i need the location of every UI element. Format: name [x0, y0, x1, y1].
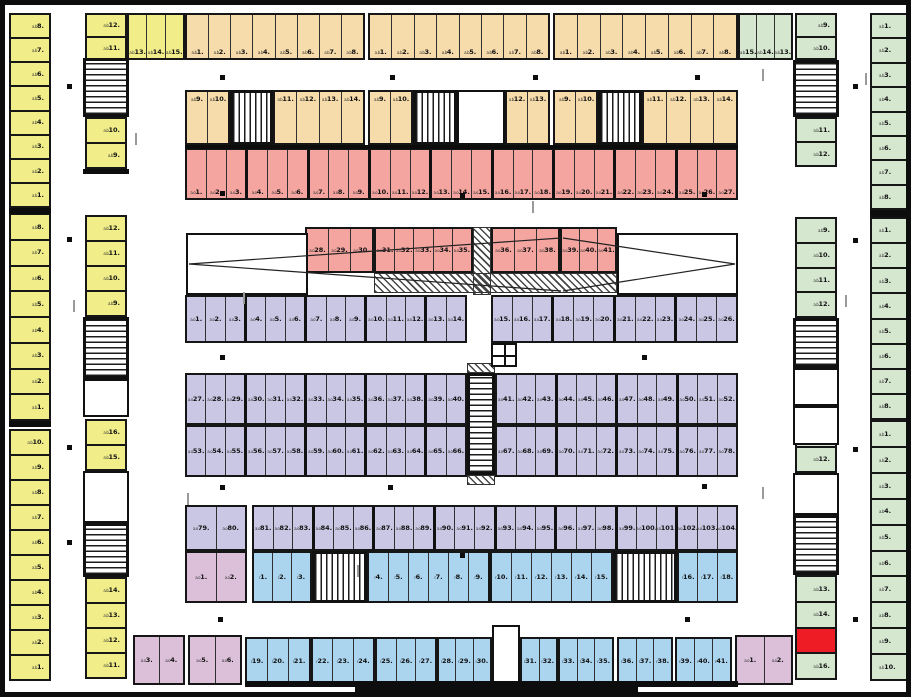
parking-stall[interactable]: a.o23.: [655, 297, 675, 341]
highlighted-stall[interactable]: [797, 627, 835, 653]
parking-stall[interactable]: a.o37.: [386, 375, 405, 423]
parking-stall[interactable]: r10.: [492, 553, 511, 601]
parking-stall[interactable]: a.o13.: [429, 150, 451, 198]
parking-stall[interactable]: a.o82.: [273, 507, 293, 549]
parking-stall[interactable]: a.b3.: [872, 472, 911, 498]
parking-stall[interactable]: a.o33.: [304, 375, 325, 423]
parking-stall[interactable]: a.o76.: [676, 427, 698, 475]
parking-stall[interactable]: a.b16.: [87, 421, 125, 444]
parking-stall[interactable]: a.b5.: [872, 111, 911, 135]
parking-stall[interactable]: a.o98.: [595, 507, 615, 549]
parking-stall[interactable]: a.o88.: [394, 507, 414, 549]
parking-stall[interactable]: a.o10.: [368, 150, 390, 198]
parking-stall[interactable]: a.o65.: [424, 427, 445, 475]
parking-stall[interactable]: a.o37.: [514, 229, 536, 271]
parking-stall[interactable]: a.o25.: [696, 297, 716, 341]
parking-stall[interactable]: a.b11.: [797, 267, 835, 292]
parking-stall[interactable]: a.b10.: [87, 265, 125, 290]
parking-stall[interactable]: a.b9.: [555, 92, 575, 143]
parking-stall[interactable]: a.b11.: [797, 119, 835, 141]
parking-stall[interactable]: a.o40.: [579, 229, 597, 271]
parking-stall[interactable]: a.b8.: [11, 215, 49, 239]
parking-stall[interactable]: a.o83.: [292, 507, 312, 549]
parking-stall[interactable]: a.b9.: [872, 627, 911, 653]
parking-stall[interactable]: a.o6.: [285, 297, 304, 341]
parking-stall[interactable]: a.b5.: [872, 318, 911, 343]
parking-stall[interactable]: a.b7.: [691, 15, 714, 58]
parking-stall[interactable]: a.b2.: [872, 446, 911, 472]
parking-stall[interactable]: a.o31.: [265, 375, 284, 423]
parking-stall[interactable]: a.b2.: [872, 37, 911, 61]
parking-stall[interactable]: a.b2.: [11, 368, 49, 394]
parking-stall[interactable]: a.o32.: [285, 375, 304, 423]
parking-stall[interactable]: a.o14.: [446, 297, 465, 341]
parking-stall[interactable]: a.o16.: [512, 297, 532, 341]
parking-stall[interactable]: a.b15.: [165, 15, 183, 58]
parking-stall[interactable]: a.o39.: [424, 375, 445, 423]
parking-stall[interactable]: a.o42.: [516, 375, 536, 423]
parking-stall[interactable]: a.o97.: [576, 507, 596, 549]
parking-stall[interactable]: a.o54.: [205, 427, 224, 475]
parking-stall[interactable]: a.o85.: [333, 507, 353, 549]
parking-stall[interactable]: r28.: [439, 639, 455, 683]
parking-stall[interactable]: a.o12.: [405, 297, 424, 341]
parking-stall[interactable]: r3.: [291, 553, 310, 601]
parking-stall[interactable]: a.b9.: [87, 142, 125, 167]
parking-stall[interactable]: r13.: [551, 553, 571, 601]
parking-stall[interactable]: a.b9.: [797, 15, 835, 36]
parking-stall[interactable]: a.o13.: [424, 297, 445, 341]
parking-stall[interactable]: a.b5.: [11, 554, 49, 579]
parking-stall[interactable]: a.b13.: [87, 602, 125, 627]
parking-stall[interactable]: r22.: [313, 639, 332, 683]
parking-stall[interactable]: a.b6.: [11, 265, 49, 291]
parking-stall[interactable]: a.o29.: [328, 229, 350, 271]
parking-stall[interactable]: a.b7.: [872, 575, 911, 601]
parking-stall[interactable]: a.o73.: [615, 427, 637, 475]
parking-stall[interactable]: a.b14.: [756, 15, 773, 58]
parking-stall[interactable]: r30.: [473, 639, 490, 683]
parking-stall[interactable]: a.b6.: [872, 343, 911, 368]
parking-stall[interactable]: a.b4.: [252, 15, 274, 58]
parking-stall[interactable]: a.o45.: [576, 375, 596, 423]
parking-stall[interactable]: a.b3.: [872, 267, 911, 292]
parking-stall[interactable]: a.b2.: [391, 15, 413, 58]
parking-stall[interactable]: a.b1.: [555, 15, 577, 58]
parking-stall[interactable]: a.o80.: [216, 507, 246, 549]
parking-stall[interactable]: a.o26.: [716, 297, 736, 341]
parking-stall[interactable]: a.o26.: [697, 150, 717, 198]
parking-stall[interactable]: r21.: [288, 639, 309, 683]
parking-stall[interactable]: a.o19.: [573, 297, 593, 341]
parking-stall[interactable]: a.o71.: [576, 427, 596, 475]
parking-stall[interactable]: a.b7.: [872, 368, 911, 393]
parking-stall[interactable]: a.b9.: [187, 92, 207, 143]
parking-stall[interactable]: a.b5.: [459, 15, 481, 58]
parking-stall[interactable]: a.o35.: [452, 229, 471, 271]
parking-stall[interactable]: a.b11.: [87, 240, 125, 265]
parking-stall[interactable]: a.b8.: [872, 393, 911, 418]
parking-stall[interactable]: r39.: [677, 639, 694, 683]
parking-stall[interactable]: a.b3.: [230, 15, 252, 58]
parking-stall[interactable]: a.b6.: [11, 61, 49, 85]
parking-stall[interactable]: a.o39.: [562, 229, 579, 271]
parking-stall[interactable]: a.b14.: [87, 579, 125, 602]
parking-stall[interactable]: a.b10.: [797, 36, 835, 59]
parking-stall[interactable]: a.o9.: [345, 297, 364, 341]
parking-stall[interactable]: a.o56.: [244, 427, 265, 475]
parking-stall[interactable]: a.o8.: [328, 150, 348, 198]
parking-stall[interactable]: a.o28.: [307, 229, 328, 271]
parking-stall[interactable]: a.o47.: [615, 375, 637, 423]
parking-stall[interactable]: a.o32.: [394, 229, 413, 271]
parking-stall[interactable]: r14.: [571, 553, 591, 601]
parking-stall[interactable]: a.o28.: [205, 375, 224, 423]
parking-stall[interactable]: a.b9.: [87, 290, 125, 315]
parking-stall[interactable]: a.o18.: [532, 150, 552, 198]
parking-stall[interactable]: a.b6.: [481, 15, 503, 58]
parking-stall[interactable]: a.b7.: [872, 159, 911, 183]
parking-stall[interactable]: a.o4.: [244, 297, 265, 341]
parking-stall[interactable]: a.b11.: [87, 652, 125, 677]
parking-stall[interactable]: a.b3.: [11, 342, 49, 368]
parking-stall[interactable]: a.o21.: [613, 297, 635, 341]
parking-stall[interactable]: a.o100.: [636, 507, 656, 549]
parking-stall[interactable]: a.o69.: [535, 427, 555, 475]
parking-stall[interactable]: a.o95.: [535, 507, 555, 549]
parking-stall[interactable]: r6.: [408, 553, 428, 601]
parking-stall[interactable]: a.b8.: [341, 15, 363, 58]
parking-stall[interactable]: a.b5.: [872, 524, 911, 550]
parking-stall[interactable]: a.b4.: [872, 498, 911, 524]
parking-stall[interactable]: a.b14.: [797, 601, 835, 627]
parking-stall[interactable]: a.o7.: [307, 150, 329, 198]
parking-stall[interactable]: a.o11.: [386, 297, 405, 341]
parking-stall[interactable]: r8.: [448, 553, 468, 601]
parking-stall[interactable]: a.b1.: [11, 393, 49, 419]
parking-stall[interactable]: r16.: [679, 553, 697, 601]
parking-stall[interactable]: a.b6.: [872, 550, 911, 576]
parking-stall[interactable]: a.b12.: [797, 291, 835, 316]
parking-stall[interactable]: a.o72.: [596, 427, 616, 475]
parking-stall[interactable]: a.b1.: [872, 15, 911, 37]
parking-stall[interactable]: a.o1.: [187, 297, 205, 341]
parking-stall[interactable]: r19.: [247, 639, 267, 683]
parking-stall[interactable]: r4.: [369, 553, 388, 601]
parking-stall[interactable]: a.o59.: [304, 427, 325, 475]
parking-stall[interactable]: a.o1.: [187, 553, 216, 601]
parking-stall[interactable]: a.o50.: [676, 375, 698, 423]
parking-stall[interactable]: a.o5.: [190, 637, 215, 683]
parking-stall[interactable]: a.o23.: [635, 150, 655, 198]
parking-stall[interactable]: r38.: [653, 639, 671, 683]
parking-stall[interactable]: a.o75.: [656, 427, 676, 475]
parking-stall[interactable]: a.b11.: [275, 92, 296, 143]
parking-stall[interactable]: a.b1.: [370, 15, 391, 58]
parking-stall[interactable]: a.b3.: [600, 15, 623, 58]
parking-stall[interactable]: a.o3.: [135, 637, 159, 683]
parking-stall[interactable]: a.b8.: [872, 601, 911, 627]
parking-stall[interactable]: a.b2.: [208, 15, 230, 58]
parking-stall[interactable]: a.o74.: [637, 427, 657, 475]
parking-stall[interactable]: r9.: [468, 553, 488, 601]
parking-stall[interactable]: a.b13.: [129, 15, 146, 58]
parking-stall[interactable]: a.o36.: [364, 375, 385, 423]
parking-stall[interactable]: a.o53.: [187, 427, 205, 475]
parking-stall[interactable]: a.o12.: [410, 150, 430, 198]
parking-stall[interactable]: a.b12.: [296, 92, 318, 143]
parking-stall[interactable]: r35.: [594, 639, 612, 683]
parking-stall[interactable]: a.o18.: [551, 297, 573, 341]
parking-stall[interactable]: a.b12.: [666, 92, 689, 143]
parking-stall[interactable]: a.b7.: [319, 15, 341, 58]
parking-stall[interactable]: a.o55.: [225, 427, 244, 475]
parking-stall[interactable]: a.b2.: [11, 629, 49, 654]
parking-stall[interactable]: r24.: [353, 639, 373, 683]
parking-stall[interactable]: a.o68.: [516, 427, 536, 475]
parking-stall[interactable]: a.b6.: [11, 529, 49, 554]
parking-stall[interactable]: a.b1.: [872, 219, 911, 242]
parking-stall[interactable]: r18.: [717, 553, 736, 601]
parking-stall[interactable]: a.b10.: [575, 92, 596, 143]
parking-stall[interactable]: a.o87.: [372, 507, 394, 549]
parking-stall[interactable]: a.o4.: [245, 150, 267, 198]
parking-stall[interactable]: a.o22.: [613, 150, 635, 198]
parking-stall[interactable]: a.b4.: [872, 292, 911, 317]
parking-stall[interactable]: a.o30.: [350, 229, 372, 271]
parking-stall[interactable]: a.o61.: [345, 427, 364, 475]
parking-stall[interactable]: a.b14.: [713, 92, 736, 143]
parking-stall[interactable]: a.b4.: [622, 15, 645, 58]
parking-stall[interactable]: a.o102.: [675, 507, 697, 549]
parking-stall[interactable]: a.b12.: [87, 217, 125, 240]
parking-stall[interactable]: a.o27.: [187, 375, 205, 423]
parking-stall[interactable]: a.o16.: [491, 150, 513, 198]
parking-stall[interactable]: a.b13.: [319, 92, 341, 143]
parking-stall[interactable]: r27.: [415, 639, 435, 683]
parking-stall[interactable]: a.o24.: [655, 150, 675, 198]
parking-stall[interactable]: a.o17.: [532, 297, 552, 341]
parking-stall[interactable]: a.b5.: [645, 15, 668, 58]
parking-stall[interactable]: a.o31.: [376, 229, 394, 271]
parking-stall[interactable]: a.o44.: [555, 375, 577, 423]
parking-stall[interactable]: a.b13.: [774, 15, 791, 58]
parking-stall[interactable]: a.o51.: [697, 375, 717, 423]
parking-stall[interactable]: a.o2.: [205, 297, 224, 341]
parking-stall[interactable]: a.b11.: [87, 36, 125, 59]
parking-stall[interactable]: r23.: [332, 639, 352, 683]
parking-stall[interactable]: a.b5.: [11, 85, 49, 109]
parking-stall[interactable]: a.o70.: [555, 427, 577, 475]
parking-stall[interactable]: a.b4.: [872, 86, 911, 110]
parking-stall[interactable]: a.o5.: [267, 150, 287, 198]
parking-stall[interactable]: a.o58.: [285, 427, 304, 475]
parking-stall[interactable]: a.o34.: [433, 229, 452, 271]
parking-stall[interactable]: a.o104.: [717, 507, 737, 549]
parking-stall[interactable]: a.b7.: [503, 15, 525, 58]
parking-stall[interactable]: a.o2.: [764, 637, 792, 683]
parking-stall[interactable]: a.b12.: [797, 446, 835, 472]
parking-stall[interactable]: a.o38.: [536, 229, 558, 271]
parking-stall[interactable]: a.o41.: [497, 375, 516, 423]
parking-stall[interactable]: a.o1.: [737, 637, 764, 683]
parking-stall[interactable]: a.b8.: [872, 184, 911, 208]
parking-stall[interactable]: a.o1.: [187, 150, 206, 198]
parking-stall[interactable]: a.o21.: [594, 150, 614, 198]
parking-stall[interactable]: a.o15.: [471, 150, 491, 198]
parking-stall[interactable]: a.b15.: [87, 444, 125, 469]
parking-stall[interactable]: a.o63.: [386, 427, 405, 475]
parking-stall[interactable]: a.o67.: [497, 427, 516, 475]
parking-stall[interactable]: a.b4.: [11, 316, 49, 342]
parking-stall[interactable]: a.b16.: [797, 652, 835, 678]
parking-stall[interactable]: a.o19.: [552, 150, 574, 198]
parking-stall[interactable]: a.o24.: [674, 297, 696, 341]
parking-stall[interactable]: r15.: [591, 553, 611, 601]
parking-stall[interactable]: a.o10.: [364, 297, 385, 341]
parking-stall[interactable]: a.o66.: [446, 427, 465, 475]
parking-stall[interactable]: a.b14.: [341, 92, 363, 143]
parking-stall[interactable]: a.o60.: [326, 427, 345, 475]
parking-stall[interactable]: r26.: [396, 639, 416, 683]
parking-stall[interactable]: a.o91.: [454, 507, 474, 549]
parking-stall[interactable]: a.o94.: [515, 507, 535, 549]
parking-stall[interactable]: a.o30.: [244, 375, 265, 423]
parking-stall[interactable]: a.b10.: [11, 431, 49, 454]
parking-stall[interactable]: r37.: [636, 639, 654, 683]
parking-stall[interactable]: r20.: [267, 639, 288, 683]
parking-stall[interactable]: a.o103.: [697, 507, 717, 549]
parking-stall[interactable]: a.o38.: [405, 375, 424, 423]
parking-stall[interactable]: a.o62.: [364, 427, 385, 475]
parking-stall[interactable]: r31.: [522, 639, 539, 683]
parking-stall[interactable]: a.b14.: [146, 15, 164, 58]
parking-stall[interactable]: a.b8.: [11, 15, 49, 37]
parking-stall[interactable]: a.b8.: [11, 479, 49, 504]
parking-stall[interactable]: a.o5.: [265, 297, 284, 341]
parking-stall[interactable]: a.b3.: [872, 62, 911, 86]
parking-stall[interactable]: a.b1.: [872, 422, 911, 446]
parking-stall[interactable]: a.o96.: [554, 507, 576, 549]
parking-stall[interactable]: a.o36.: [493, 229, 514, 271]
parking-stall[interactable]: a.b12.: [87, 15, 125, 36]
parking-stall[interactable]: a.b6.: [668, 15, 691, 58]
parking-stall[interactable]: a.b4.: [11, 110, 49, 134]
parking-stall[interactable]: a.o6.: [215, 637, 241, 683]
parking-stall[interactable]: a.o52.: [717, 375, 737, 423]
parking-stall[interactable]: a.o49.: [656, 375, 676, 423]
parking-stall[interactable]: a.o77.: [697, 427, 717, 475]
parking-stall[interactable]: a.o79.: [187, 507, 216, 549]
parking-stall[interactable]: a.o15.: [493, 297, 512, 341]
parking-stall[interactable]: a.o34.: [326, 375, 345, 423]
parking-stall[interactable]: a.b10.: [207, 92, 228, 143]
parking-stall[interactable]: a.b1.: [11, 654, 49, 679]
parking-stall[interactable]: a.b5.: [275, 15, 297, 58]
parking-stall[interactable]: a.b1.: [11, 182, 49, 206]
parking-stall[interactable]: a.b9.: [370, 92, 390, 143]
parking-stall[interactable]: a.b8.: [713, 15, 736, 58]
parking-stall[interactable]: a.o22.: [635, 297, 655, 341]
parking-stall[interactable]: a.o9.: [348, 150, 368, 198]
parking-stall[interactable]: a.o7.: [304, 297, 325, 341]
parking-stall[interactable]: a.o89.: [413, 507, 433, 549]
parking-stall[interactable]: r1.: [254, 553, 272, 601]
parking-stall[interactable]: a.b10.: [87, 119, 125, 142]
parking-stall[interactable]: a.o41.: [597, 229, 615, 271]
parking-stall[interactable]: a.b9.: [797, 219, 835, 242]
parking-stall[interactable]: a.o35.: [345, 375, 364, 423]
parking-stall[interactable]: a.o4.: [159, 637, 184, 683]
parking-stall[interactable]: a.b7.: [11, 239, 49, 265]
parking-stall[interactable]: a.o86.: [353, 507, 373, 549]
parking-stall[interactable]: a.b3.: [414, 15, 436, 58]
parking-stall[interactable]: r17.: [697, 553, 716, 601]
parking-stall[interactable]: a.b12.: [87, 627, 125, 652]
parking-stall[interactable]: a.b4.: [11, 579, 49, 604]
parking-stall[interactable]: a.o43.: [535, 375, 555, 423]
parking-stall[interactable]: a.b10.: [872, 653, 911, 679]
parking-stall[interactable]: r33.: [560, 639, 577, 683]
parking-stall[interactable]: a.o90.: [433, 507, 455, 549]
parking-stall[interactable]: r12.: [531, 553, 551, 601]
parking-stall[interactable]: a.b11.: [644, 92, 666, 143]
parking-stall[interactable]: a.o2.: [216, 553, 246, 601]
parking-stall[interactable]: a.o33.: [413, 229, 432, 271]
parking-stall[interactable]: a.b13.: [690, 92, 713, 143]
parking-stall[interactable]: a.b12.: [507, 92, 527, 143]
parking-stall[interactable]: a.o48.: [637, 375, 657, 423]
parking-stall[interactable]: a.b2.: [577, 15, 600, 58]
parking-stall[interactable]: a.b9.: [11, 454, 49, 479]
parking-stall[interactable]: r29.: [455, 639, 472, 683]
parking-stall[interactable]: a.b3.: [11, 134, 49, 158]
parking-stall[interactable]: a.b2.: [11, 158, 49, 182]
parking-stall[interactable]: a.o6.: [287, 150, 307, 198]
parking-stall[interactable]: a.o11.: [390, 150, 410, 198]
parking-stall[interactable]: a.b10.: [390, 92, 411, 143]
parking-stall[interactable]: a.o78.: [717, 427, 737, 475]
parking-stall[interactable]: a.o29.: [225, 375, 244, 423]
parking-stall[interactable]: r25.: [377, 639, 396, 683]
parking-stall[interactable]: a.b10.: [797, 242, 835, 267]
parking-stall[interactable]: a.o3.: [225, 297, 244, 341]
parking-stall[interactable]: a.b7.: [11, 504, 49, 529]
parking-stall[interactable]: a.b6.: [872, 135, 911, 159]
parking-stall[interactable]: r7.: [428, 553, 448, 601]
parking-stall[interactable]: a.o64.: [405, 427, 424, 475]
parking-stall[interactable]: r5.: [388, 553, 408, 601]
parking-stall[interactable]: a.o57.: [265, 427, 284, 475]
parking-stall[interactable]: a.o101.: [656, 507, 676, 549]
parking-stall[interactable]: r11.: [511, 553, 531, 601]
parking-stall[interactable]: a.o8.: [326, 297, 345, 341]
parking-stall[interactable]: a.o25.: [675, 150, 697, 198]
parking-stall[interactable]: a.o20.: [574, 150, 594, 198]
parking-stall[interactable]: a.o14.: [451, 150, 471, 198]
parking-stall[interactable]: r34.: [577, 639, 595, 683]
parking-stall[interactable]: r40.: [694, 639, 712, 683]
parking-stall[interactable]: r32.: [539, 639, 557, 683]
parking-stall[interactable]: a.o46.: [596, 375, 616, 423]
parking-stall[interactable]: a.b12.: [797, 141, 835, 165]
parking-stall[interactable]: a.b13.: [797, 577, 835, 601]
parking-stall[interactable]: a.b7.: [11, 37, 49, 61]
parking-stall[interactable]: a.b2.: [872, 242, 911, 267]
parking-stall[interactable]: a.o81.: [254, 507, 273, 549]
parking-stall[interactable]: a.o20.: [593, 297, 613, 341]
parking-stall[interactable]: a.b8.: [526, 15, 548, 58]
